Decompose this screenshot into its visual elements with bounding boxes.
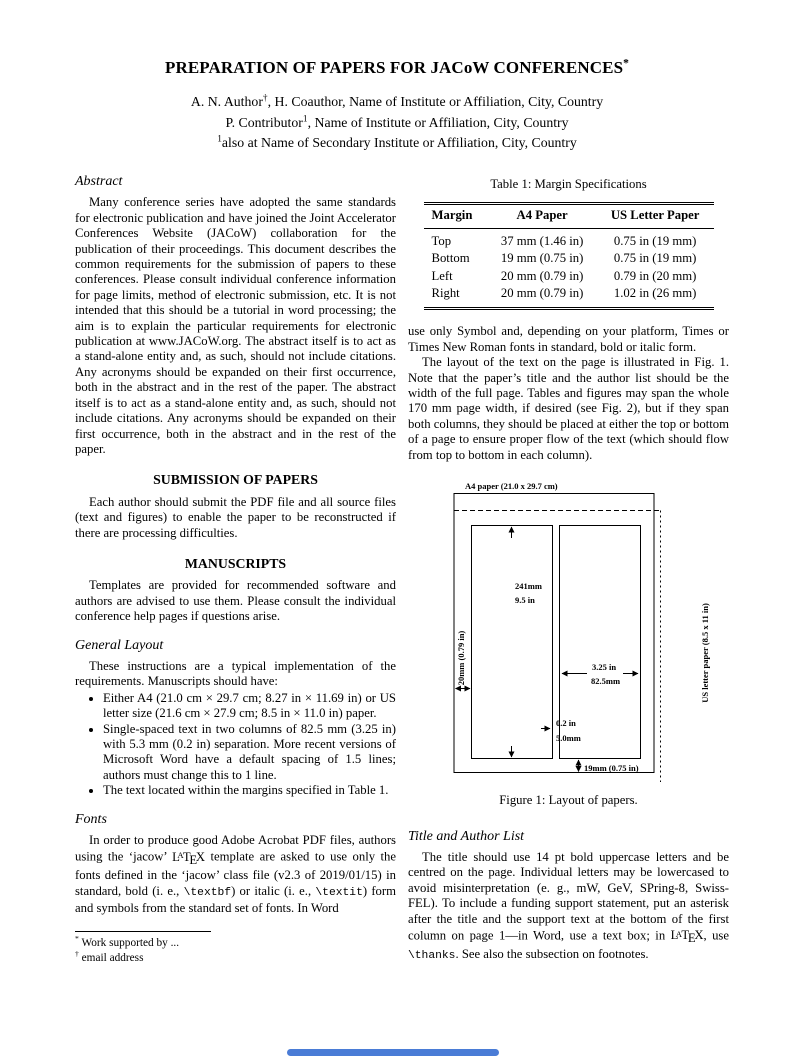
general-layout-heading: General Layout xyxy=(75,638,396,653)
list-item: The text located within the margins spec… xyxy=(103,783,396,798)
table-row: Left 20 mm (0.79 in) 0.79 in (20 mm) xyxy=(424,268,714,285)
column-header: A4 Paper xyxy=(487,204,596,228)
abstract-heading: Abstract xyxy=(75,174,396,189)
submission-heading: SUBMISSION OF PAPERS xyxy=(75,472,396,487)
footnote: * Work supported by ... xyxy=(75,936,396,951)
author-line: P. Contributor1, Name of Institute or Af… xyxy=(0,113,794,134)
figure-bottom-margin-label: 19mm (0.75 in) xyxy=(584,763,639,773)
paper-title: PREPARATION OF PAPERS FOR JACoW CONFEREN… xyxy=(0,58,794,78)
column-header: Margin xyxy=(424,204,488,228)
figure-layout-of-papers: A4 paper (21.0 x 29.7 cm) 241mm 9.5 in 2… xyxy=(408,478,729,790)
bottom-indicator-bar xyxy=(287,1049,499,1056)
table-cell: 20 mm (0.79 in) xyxy=(487,285,596,309)
author-line: 1also at Name of Secondary Institute or … xyxy=(0,133,794,154)
margin-specifications-table: Margin A4 Paper US Letter Paper Top 37 m… xyxy=(424,202,714,310)
figure-gap-in-label: 0.2 in xyxy=(556,718,576,728)
table-cell: Top xyxy=(424,228,488,250)
title-author-list-heading: Title and Author List xyxy=(408,829,729,844)
pdf-page: PREPARATION OF PAPERS FOR JACoW CONFEREN… xyxy=(0,0,794,1057)
table-cell: 0.79 in (20 mm) xyxy=(597,268,714,285)
figure-paper-size-label: A4 paper (21.0 x 29.7 cm) xyxy=(465,481,558,491)
column-header: US Letter Paper xyxy=(597,204,714,228)
table-cell: 0.75 in (19 mm) xyxy=(597,250,714,267)
title-author-paragraph: The title should use 14 pt bold uppercas… xyxy=(408,850,729,964)
footnote-rule xyxy=(75,931,211,932)
right-column: Table 1: Margin Specifications Margin A4… xyxy=(408,172,729,964)
body-paragraph: use only Symbol and, depending on your p… xyxy=(408,324,729,355)
table-cell: 19 mm (0.75 in) xyxy=(487,250,596,267)
table-cell: 0.75 in (19 mm) xyxy=(597,228,714,250)
table-cell: 20 mm (0.79 in) xyxy=(487,268,596,285)
manuscripts-heading: MANUSCRIPTS xyxy=(75,556,396,571)
figure-column-height-mm-label: 241mm xyxy=(515,581,542,591)
left-column: Abstract Many conference series have ado… xyxy=(75,172,396,966)
list-item: Single-spaced text in two columns of 82.… xyxy=(103,722,396,784)
table-cell: 1.02 in (26 mm) xyxy=(597,285,714,309)
figure-drawing: A4 paper (21.0 x 29.7 cm) 241mm 9.5 in 2… xyxy=(408,478,729,790)
fonts-heading: Fonts xyxy=(75,812,396,827)
paper-header: PREPARATION OF PAPERS FOR JACoW CONFEREN… xyxy=(0,58,794,154)
table-cell: Left xyxy=(424,268,488,285)
general-layout-intro: These instructions are a typical impleme… xyxy=(75,659,396,690)
table-cell: Bottom xyxy=(424,250,488,267)
fonts-paragraph: In order to produce good Adobe Acrobat P… xyxy=(75,833,396,916)
figure-column-width-in-label: 3.25 in xyxy=(592,662,616,672)
figure-gap-mm-label: 5.0mm xyxy=(556,733,581,743)
list-item: Either A4 (21.0 cm × 29.7 cm; 8.27 in × … xyxy=(103,691,396,722)
figure-column-width-mm-label: 82.5mm xyxy=(591,676,620,686)
table-row: Top 37 mm (1.46 in) 0.75 in (19 mm) xyxy=(424,228,714,250)
a4-outline xyxy=(454,494,654,773)
footnote-block: * Work supported by ... † email address xyxy=(75,931,396,966)
table-header-row: Margin A4 Paper US Letter Paper xyxy=(424,204,714,228)
body-paragraph: The layout of the text on the page is il… xyxy=(408,355,729,463)
requirements-list: Either A4 (21.0 cm × 29.7 cm; 8.27 in × … xyxy=(75,691,396,799)
abstract-paragraph: Many conference series have adopted the … xyxy=(75,195,396,457)
table-cell: 37 mm (1.46 in) xyxy=(487,228,596,250)
figure-left-margin-label: 20mm (0.79 in) xyxy=(456,631,466,686)
footnote: † email address xyxy=(75,951,396,966)
table-caption: Table 1: Margin Specifications xyxy=(408,177,729,192)
table-row: Right 20 mm (0.79 in) 1.02 in (26 mm) xyxy=(424,285,714,309)
figure-us-letter-label: US letter paper (8.5 x 11 in) xyxy=(700,603,710,703)
table-row: Bottom 19 mm (0.75 in) 0.75 in (19 mm) xyxy=(424,250,714,267)
manuscripts-paragraph: Templates are provided for recommended s… xyxy=(75,578,396,624)
table-cell: Right xyxy=(424,285,488,309)
figure-column-height-in-label: 9.5 in xyxy=(515,595,535,605)
left-text-column-box xyxy=(472,526,553,759)
figure-caption: Figure 1: Layout of papers. xyxy=(408,793,729,808)
submission-paragraph: Each author should submit the PDF file a… xyxy=(75,495,396,541)
author-line: A. N. Author†, H. Coauthor, Name of Inst… xyxy=(0,92,794,113)
